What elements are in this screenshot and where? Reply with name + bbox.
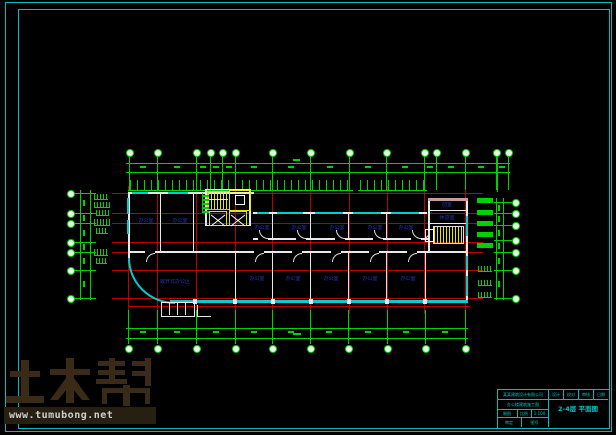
railing-tick (423, 180, 424, 190)
room-label: 办公室 (389, 225, 423, 231)
room-label: 办公室 (240, 276, 274, 282)
window-post (233, 299, 237, 304)
dim-text-dash (498, 205, 500, 211)
dim-text-dash (478, 166, 484, 168)
dim-text-dash (365, 331, 371, 333)
step-line (169, 302, 170, 315)
grid-bubble (383, 149, 391, 157)
railing-tick (130, 180, 131, 190)
axis-line-green (494, 202, 512, 203)
detail-bar (477, 243, 493, 248)
room-label: 办公室 (245, 225, 279, 231)
axis-line-green (494, 270, 512, 271)
detail-bar (477, 198, 493, 203)
grid-bubble (345, 345, 353, 353)
grid-bubble (232, 345, 240, 353)
axis-line-green (494, 213, 512, 214)
axis-line-green (74, 298, 96, 299)
titleblock-cell: 日期 (594, 389, 608, 399)
dim-text-dash (498, 230, 500, 236)
axis-line-green (494, 240, 512, 241)
detail-comb (96, 258, 107, 264)
grid-bubble (307, 149, 315, 157)
axis-line-green (494, 298, 512, 299)
dim-line (126, 338, 468, 339)
railing-tick (367, 180, 368, 190)
window (466, 276, 468, 296)
grid-bubble (433, 149, 441, 157)
cad-canvas[interactable]: 某某建筑设计有限公司 设计 校对 审核 日期 办公楼建筑施工图 制图 比例 1:… (0, 0, 616, 435)
dim-text-dash (498, 243, 500, 249)
grid-line-red-v (196, 186, 197, 314)
dim-text-dash (365, 166, 371, 168)
railing-tick (305, 180, 306, 190)
grid-bubble (67, 267, 75, 275)
grid-bubble (422, 345, 430, 353)
dim-text-dash (174, 166, 180, 168)
dim-text-dash (140, 166, 146, 168)
titleblock-cell: 制图 (497, 409, 517, 417)
railing-tick (172, 180, 173, 190)
axis-line-green (74, 193, 96, 194)
stair-hatch (207, 191, 230, 210)
grid-bubble (421, 149, 429, 157)
titleblock-cell: 审定 (497, 417, 521, 427)
wall (428, 199, 430, 253)
room-label: 办公室 (314, 276, 348, 282)
dim-text-dash (427, 166, 433, 168)
window-post (271, 299, 275, 304)
dim-text-dash (174, 331, 180, 333)
railing-tick (284, 180, 285, 190)
wall (430, 210, 466, 211)
grid-bubble (154, 149, 162, 157)
detail-comb (94, 219, 110, 226)
railing-line (358, 190, 427, 191)
window-post (309, 299, 313, 304)
dim-text-dash (226, 166, 232, 168)
elevator-shaft (229, 211, 247, 226)
railing-tick (144, 180, 145, 190)
dim-text-dash (83, 244, 85, 250)
dim-text-dash (326, 331, 332, 333)
axis-line-green (74, 242, 96, 243)
dim-text-dash (293, 159, 300, 161)
dim-text-dash (251, 166, 257, 168)
elevator-shaft (209, 211, 227, 226)
grid-bubble (512, 249, 520, 257)
dim-line (90, 190, 91, 300)
detail-comb (478, 266, 492, 272)
room-label: 敞开式办公区 (151, 279, 199, 285)
step-line (185, 302, 186, 315)
titleblock-cell: 审核 (579, 389, 593, 399)
railing-tick (381, 180, 382, 190)
room-label: 前室 (434, 202, 460, 208)
watermark-brand-logo (6, 358, 158, 406)
window (257, 212, 269, 214)
dim-text-dash (83, 215, 85, 221)
axis-line-green (74, 270, 96, 271)
grid-bubble (269, 345, 277, 353)
dim-line (126, 163, 510, 164)
wall (235, 253, 236, 302)
wall (425, 253, 426, 302)
grid-bubble (67, 190, 75, 198)
window (391, 212, 419, 214)
room-label: 办公室 (276, 276, 310, 282)
grid-bubble (269, 149, 277, 157)
railing-tick (374, 180, 375, 190)
axis-line-green (494, 252, 512, 253)
axis-line-green (74, 213, 96, 214)
entrance-steps (161, 302, 195, 317)
railing-tick (319, 180, 320, 190)
window (168, 192, 188, 194)
axis-line-green (74, 252, 96, 253)
room-label: 办公室 (353, 276, 387, 282)
grid-bubble (125, 345, 133, 353)
grid-bubble (154, 345, 162, 353)
axis-line-green (310, 156, 311, 190)
stair-landing (207, 199, 228, 200)
railing-tick (151, 180, 152, 190)
axis-line-green (497, 156, 498, 192)
grid-bubble (307, 345, 315, 353)
dim-text-dash (498, 216, 500, 222)
window (466, 256, 468, 270)
grid-bubble (232, 149, 240, 157)
axis-line-green (210, 156, 211, 190)
room-label: 办公室 (163, 218, 197, 224)
railing-tick (137, 180, 138, 190)
dim-text-dash (83, 230, 85, 236)
axis-line-green (74, 223, 96, 224)
grid-bubble (67, 295, 75, 303)
railing-tick (291, 180, 292, 190)
railing-tick (326, 180, 327, 190)
railing-tick (165, 180, 166, 190)
detail-comb (94, 249, 108, 256)
ramp-hatch (202, 193, 209, 213)
titleblock-company: 某某建筑设计有限公司 (498, 389, 548, 399)
detail-comb (478, 280, 492, 286)
grid-bubble (462, 149, 470, 157)
dim-text-dash (498, 281, 500, 287)
railing-tick (256, 180, 257, 190)
axis-line-green (494, 225, 512, 226)
railing-tick (347, 180, 348, 190)
railing-tick (333, 180, 334, 190)
grid-bubble (193, 345, 201, 353)
window (353, 212, 381, 214)
detail-comb (478, 292, 492, 298)
grid-bubble (512, 199, 520, 207)
grid-bubble (67, 239, 75, 247)
railing-tick (395, 180, 396, 190)
railing-tick (158, 180, 159, 190)
window-post (423, 299, 427, 304)
window (466, 216, 468, 236)
dim-line (126, 172, 510, 173)
titleblock-cell: 校对 (564, 389, 578, 399)
dim-line (80, 190, 81, 300)
grid-bubble (505, 149, 513, 157)
dim-text-dash (140, 331, 146, 333)
room-label: 办公室 (282, 225, 316, 231)
detail-comb (94, 202, 110, 208)
railing-tick (409, 180, 410, 190)
dim-text-dash (403, 331, 409, 333)
titleblock-cell: 图号 (521, 417, 548, 427)
step-line (177, 302, 178, 315)
axis-line-green (196, 156, 197, 190)
railing-tick (200, 180, 201, 190)
window-post (385, 299, 389, 304)
dim-text-dash (448, 166, 454, 168)
axis-line-green (349, 156, 350, 190)
railing-tick (270, 180, 271, 190)
railing-tick (263, 180, 264, 190)
dim-text-dash (213, 166, 219, 168)
axis-line-green (386, 156, 387, 190)
detail-bar (477, 210, 493, 215)
dim-text-dash (402, 166, 408, 168)
dim-text-dash (200, 166, 206, 168)
elevator-cab (235, 195, 245, 205)
wall (430, 223, 466, 224)
grid-bubble (512, 210, 520, 218)
titleblock-cell: 设计 (549, 389, 563, 399)
grid-bubble (67, 249, 75, 257)
railing-tick (360, 180, 361, 190)
room-label: 休息室 (434, 215, 460, 221)
grid-bubble (512, 222, 520, 230)
dim-text-dash (213, 331, 219, 333)
dim-text-dash (83, 200, 85, 206)
railing-tick (402, 180, 403, 190)
grid-line-red-v (387, 186, 388, 314)
window (127, 198, 129, 214)
detail-bar (477, 232, 493, 237)
detail-comb (96, 228, 108, 234)
shaft-x-icon (230, 214, 246, 227)
grid-bubble (512, 267, 520, 275)
railing-tick (312, 180, 313, 190)
railing-tick (277, 180, 278, 190)
railing-tick (416, 180, 417, 190)
window (132, 192, 148, 194)
drawing-title: 2-4层 平面图 (549, 400, 607, 418)
grid-bubble (384, 345, 392, 353)
dim-text-dash (293, 333, 301, 335)
grid-bubble (126, 149, 134, 157)
railing-tick (298, 180, 299, 190)
grid-line-red-v (349, 186, 350, 314)
room-label: 办公室 (320, 225, 354, 231)
detail-comb (94, 194, 108, 200)
grid-bubble (346, 149, 354, 157)
titleblock-project: 办公楼建筑施工图 (498, 399, 548, 409)
room-label: 办公室 (129, 218, 163, 224)
detail-comb (96, 210, 109, 216)
grid-bubble (219, 149, 227, 157)
railing-tick (186, 180, 187, 190)
wall (348, 253, 349, 302)
railing-tick (179, 180, 180, 190)
room-label: 办公室 (358, 225, 392, 231)
stair-hatch (433, 226, 464, 244)
dim-text-dash (499, 166, 505, 168)
dim-text-dash (83, 258, 85, 264)
grid-bubble (67, 220, 75, 228)
grid-bubble (512, 237, 520, 245)
axis-line-green (436, 156, 437, 190)
dim-line (126, 328, 468, 329)
axis-line-green (424, 156, 425, 190)
grid-bubble (193, 149, 201, 157)
window (277, 212, 303, 214)
dim-text-dash (442, 331, 448, 333)
watermark: www.tumubong.net (4, 358, 162, 428)
wall (310, 253, 311, 302)
grid-bubble (207, 149, 215, 157)
axis-line-green (222, 156, 223, 190)
dim-text-dash (327, 166, 333, 168)
dim-text-dash (498, 258, 500, 264)
window-post (347, 299, 351, 304)
window (315, 212, 343, 214)
dim-text-dash (251, 331, 257, 333)
railing-tick (388, 180, 389, 190)
axis-line-green (272, 156, 273, 190)
wall-pink (428, 198, 468, 201)
axis-line-green (465, 156, 466, 190)
dim-text-dash (288, 166, 294, 168)
grid-bubble (462, 345, 470, 353)
grid-bubble (512, 295, 520, 303)
room-label: 办公室 (391, 276, 425, 282)
grid-bubble (67, 210, 75, 218)
railing-tick (340, 180, 341, 190)
dim-text-dash (83, 281, 85, 287)
titleblock-cell: 比例 (517, 409, 531, 417)
railing-tick (193, 180, 194, 190)
shaft-x-icon (210, 214, 226, 227)
titleblock-cell: 1:100 (531, 409, 548, 417)
detail-bar (477, 221, 493, 226)
entrance-bracket (197, 305, 211, 317)
axis-line-green (508, 156, 509, 190)
watermark-url: www.tumubong.net (4, 407, 156, 424)
